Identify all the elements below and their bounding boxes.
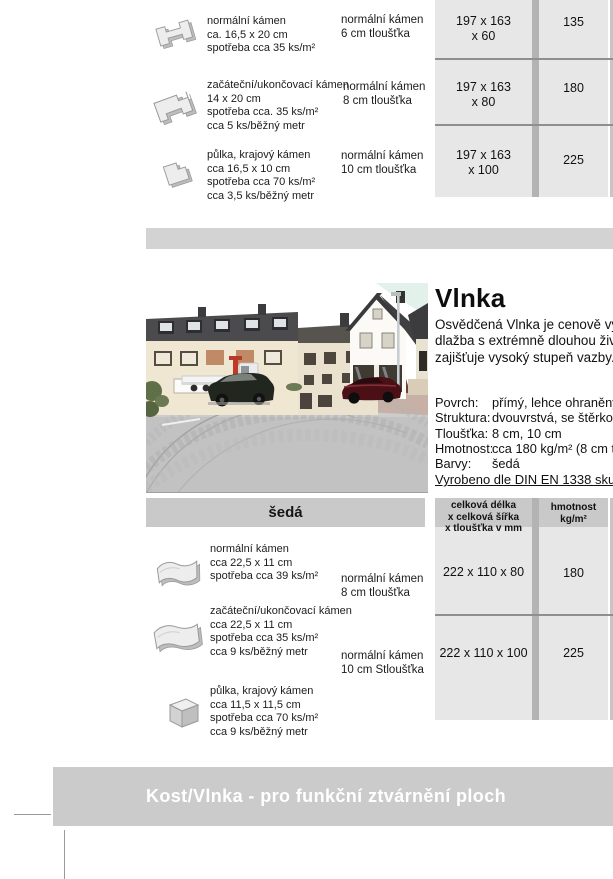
standard-note: Vyrobeno dle DIN EN 1338 skupiny xyxy=(435,472,613,487)
stone-description: začáteční/ukončovací kámen cca 22,5 x 11… xyxy=(210,605,352,659)
intro-line: zajišťuje vysoký stupeň vazby. xyxy=(435,350,613,366)
stone-description: půlka, krajový kámen cca 11,5 x 11,5 cm … xyxy=(210,685,318,739)
variant-line: normální kámen xyxy=(341,149,423,163)
color-band: šedá xyxy=(146,498,425,527)
dimension-line: 197 x 163 xyxy=(435,14,532,29)
dimension-cell: 197 x 163 x 80 xyxy=(435,80,532,110)
description-line: začáteční/ukončovací kámen xyxy=(207,79,349,93)
description-line: spotřeba cca 35 ks/m² xyxy=(210,632,352,646)
color-band-label: šedá xyxy=(268,504,302,521)
intro-line: Osvědčená Vlnka je cenově výho xyxy=(435,317,613,333)
description-line: 14 x 20 cm xyxy=(207,93,349,107)
dimension-cell: 222 x 110 x 100 xyxy=(435,646,532,661)
bone-stone-icon xyxy=(150,10,196,54)
spec-label: Povrch: xyxy=(435,395,492,410)
description-line: spotřeba cca 70 ks/m² xyxy=(207,176,315,190)
description-line: ca. 16,5 x 20 cm xyxy=(207,29,315,43)
left-crop-mark xyxy=(14,814,51,815)
spec-label: Struktura: xyxy=(435,410,492,425)
description-line: normální kámen xyxy=(210,543,318,557)
product-title: Vlnka xyxy=(435,283,505,314)
spec-row: Tloušťka: 8 cm, 10 cm xyxy=(435,426,613,441)
variant-line: 6 cm tloušťka xyxy=(341,27,423,41)
top-table-column-gap xyxy=(532,0,539,197)
spec-value: přímý, lehce ohraněný xyxy=(492,395,613,410)
variant-line: normální kámen xyxy=(343,80,425,94)
description-line: cca 22,5 x 11 cm xyxy=(210,619,352,633)
top-table-row-separator-1 xyxy=(435,58,613,60)
description-line: cca 11,5 x 11,5 cm xyxy=(210,699,318,713)
description-line: cca 22,5 x 11 cm xyxy=(210,557,318,571)
weight-cell: 225 xyxy=(539,646,608,660)
weight-cell: 180 xyxy=(539,81,608,95)
street-photo xyxy=(146,283,428,493)
top-table-row-separator-2 xyxy=(435,124,613,126)
stone-description: normální kámen cca 22,5 x 11 cm spotřeba… xyxy=(210,543,318,584)
catalog-page: normální kámen ca. 16,5 x 20 cm spotřeba… xyxy=(0,0,613,879)
variant-line: normální kámen xyxy=(341,13,423,27)
weight-cell: 180 xyxy=(539,566,608,580)
stone-variant: normální kámen 6 cm tloušťka xyxy=(341,13,423,41)
description-line: cca 3,5 ks/běžný metr xyxy=(207,190,315,204)
description-line: začáteční/ukončovací kámen xyxy=(210,605,352,619)
bottom-crop-mark xyxy=(64,830,65,879)
description-line: spotřeba cca. 35 ks/m² xyxy=(207,106,349,120)
footer-banner-text: Kost/Vlnka - pro funkční ztvárnění ploch xyxy=(146,786,520,807)
stone-variant: normální kámen 10 cm Stloušťka xyxy=(341,649,424,677)
description-line: spotřeba cca 39 ks/m² xyxy=(210,570,318,584)
stone-variant: normální kámen 8 cm tloušťka xyxy=(341,572,423,600)
spec-row: Povrch: přímý, lehce ohraněný xyxy=(435,395,613,410)
weight-cell: 135 xyxy=(539,15,608,29)
stone-description: normální kámen ca. 16,5 x 20 cm spotřeba… xyxy=(207,15,315,56)
spec-value: šedá xyxy=(492,456,520,471)
dimension-cell: 197 x 163 x 60 xyxy=(435,14,532,44)
weight-header-text: hmotnost kg/m² xyxy=(539,502,608,525)
section-divider-bar xyxy=(146,228,613,249)
header-line: celková délka xyxy=(435,500,532,512)
spec-value: 8 cm, 10 cm xyxy=(492,426,562,441)
spec-value: cca 180 kg/m² (8 cm tlou xyxy=(492,441,613,456)
spec-label: Tloušťka: xyxy=(435,426,492,441)
footer-banner: Kost/Vlnka - pro funkční ztvárnění ploch xyxy=(53,767,613,826)
description-line: spotřeba cca 70 ks/m² xyxy=(210,712,318,726)
bottom-table-column-gap xyxy=(532,498,539,720)
wave-edge-stone-icon xyxy=(149,611,205,661)
description-line: půlka, krajový kámen xyxy=(207,149,315,163)
product-specs: Povrch: přímý, lehce ohraněný Struktura:… xyxy=(435,395,613,471)
description-line: spotřeba cca 35 ks/m² xyxy=(207,42,315,56)
product-intro: Osvědčená Vlnka je cenově výho dlažba s … xyxy=(435,317,613,366)
variant-line: 8 cm tloušťka xyxy=(343,94,425,108)
description-line: půlka, krajový kámen xyxy=(210,685,318,699)
spec-row: Barvy: šedá xyxy=(435,456,613,471)
description-line: cca 16,5 x 10 cm xyxy=(207,163,315,177)
header-line: kg/m² xyxy=(539,514,608,526)
spec-label: Hmotnost: xyxy=(435,441,492,456)
description-line: cca 9 ks/běžný metr xyxy=(210,726,318,740)
intro-line: dlažba s extrémně dlouhou živo xyxy=(435,333,613,349)
variant-line: 10 cm tloušťka xyxy=(341,163,423,177)
weight-cell: 225 xyxy=(539,153,608,167)
stone-variant: normální kámen 8 cm tloušťka xyxy=(343,80,425,108)
edge-stone-icon xyxy=(148,82,198,130)
stone-description: půlka, krajový kámen cca 16,5 x 10 cm sp… xyxy=(207,149,315,203)
header-line: x tloušťka v mm xyxy=(435,523,532,535)
half-cube-stone-icon xyxy=(160,691,202,733)
bottom-table-dimension-column xyxy=(435,527,532,720)
wave-stone-icon xyxy=(152,548,204,596)
stone-description: začáteční/ukončovací kámen 14 x 20 cm sp… xyxy=(207,79,349,133)
half-stone-icon xyxy=(157,152,195,192)
bottom-table-row-separator xyxy=(435,614,613,616)
bottom-table-weight-column xyxy=(539,527,608,720)
spec-value: dvouvrstvá, se štěrkovou xyxy=(492,410,613,425)
spec-row: Struktura: dvouvrstvá, se štěrkovou xyxy=(435,410,613,425)
description-line: cca 5 ks/běžný metr xyxy=(207,120,349,134)
description-line: normální kámen xyxy=(207,15,315,29)
spec-label: Barvy: xyxy=(435,456,492,471)
dimension-header-text: celková délka x celková šířka x tloušťka… xyxy=(435,500,532,535)
dimension-line: x 80 xyxy=(435,95,532,110)
variant-line: 10 cm Stloušťka xyxy=(341,663,424,677)
description-line: cca 9 ks/běžný metr xyxy=(210,646,352,660)
stone-variant: normální kámen 10 cm tloušťka xyxy=(341,149,423,177)
top-table-weight-column xyxy=(539,0,608,197)
variant-line: normální kámen xyxy=(341,572,423,586)
dimension-cell: 222 x 110 x 80 xyxy=(435,565,532,580)
header-line: hmotnost xyxy=(539,502,608,514)
dimension-line: x 100 xyxy=(435,163,532,178)
header-line: x celková šířka xyxy=(435,512,532,524)
variant-line: 8 cm tloušťka xyxy=(341,586,423,600)
variant-line: normální kámen xyxy=(341,649,424,663)
dimension-line: x 60 xyxy=(435,29,532,44)
dimension-line: 197 x 163 xyxy=(435,148,532,163)
spec-row: Hmotnost: cca 180 kg/m² (8 cm tlou xyxy=(435,441,613,456)
dimension-line: 197 x 163 xyxy=(435,80,532,95)
dimension-cell: 197 x 163 x 100 xyxy=(435,148,532,178)
